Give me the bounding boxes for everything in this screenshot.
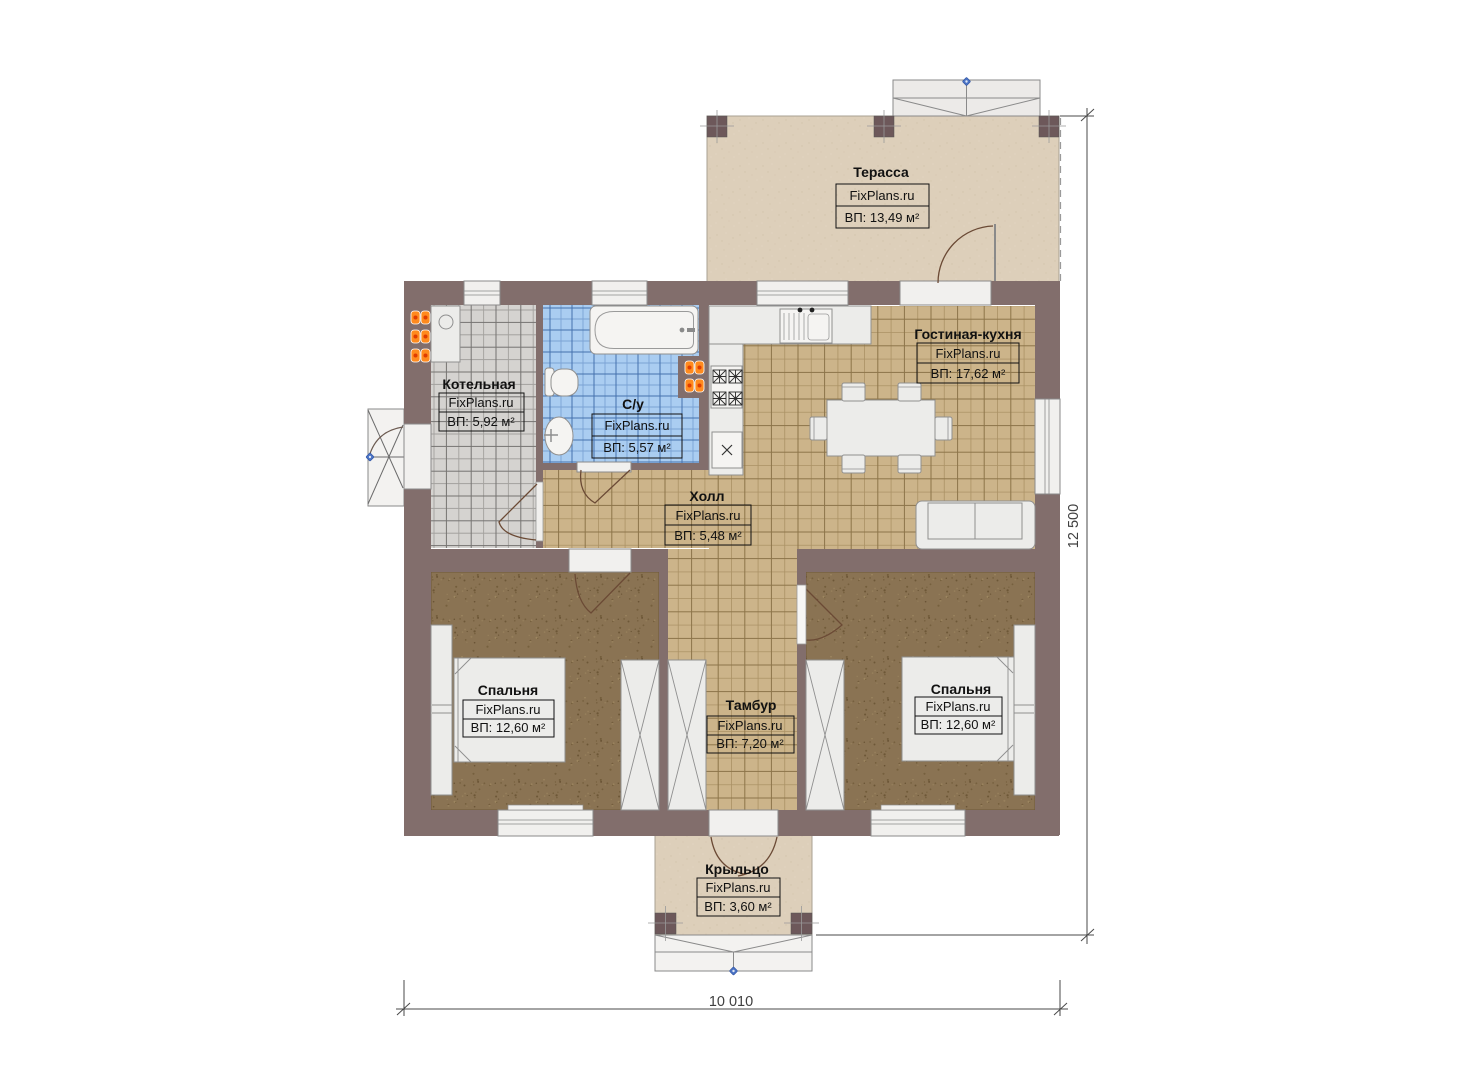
svg-text:FixPlans.ru: FixPlans.ru — [705, 880, 770, 895]
svg-text:FixPlans.ru: FixPlans.ru — [604, 418, 669, 433]
svg-text:Спальня: Спальня — [478, 682, 538, 698]
svg-text:12 500: 12 500 — [1066, 504, 1082, 548]
svg-text:10 010: 10 010 — [709, 994, 753, 1010]
svg-text:ВП: 7,20 м²: ВП: 7,20 м² — [716, 736, 784, 751]
svg-text:FixPlans.ru: FixPlans.ru — [935, 346, 1000, 361]
svg-text:ВП: 17,62 м²: ВП: 17,62 м² — [931, 366, 1006, 381]
svg-text:Котельная: Котельная — [442, 376, 515, 392]
svg-text:FixPlans.ru: FixPlans.ru — [925, 699, 990, 714]
svg-text:ВП: 5,92 м²: ВП: 5,92 м² — [447, 414, 515, 429]
svg-text:ВП: 12,60 м²: ВП: 12,60 м² — [921, 717, 996, 732]
svg-text:FixPlans.ru: FixPlans.ru — [448, 395, 513, 410]
svg-text:Гостиная-кухня: Гостиная-кухня — [914, 326, 1021, 342]
svg-text:ВП: 12,60 м²: ВП: 12,60 м² — [471, 720, 546, 735]
svg-text:ВП: 5,48 м²: ВП: 5,48 м² — [674, 528, 742, 543]
svg-text:ВП: 13,49 м²: ВП: 13,49 м² — [845, 210, 920, 225]
svg-text:Крыльцо: Крыльцо — [705, 861, 769, 877]
svg-text:FixPlans.ru: FixPlans.ru — [475, 702, 540, 717]
svg-text:FixPlans.ru: FixPlans.ru — [849, 188, 914, 203]
svg-text:FixPlans.ru: FixPlans.ru — [717, 718, 782, 733]
svg-text:ВП: 5,57 м²: ВП: 5,57 м² — [603, 440, 671, 455]
svg-text:Спальня: Спальня — [931, 681, 991, 697]
svg-text:FixPlans.ru: FixPlans.ru — [675, 508, 740, 523]
svg-text:С/у: С/у — [622, 396, 644, 412]
svg-text:Терасса: Терасса — [853, 164, 909, 180]
svg-text:Холл: Холл — [689, 488, 724, 504]
svg-text:Тамбур: Тамбур — [726, 697, 777, 713]
svg-text:ВП: 3,60 м²: ВП: 3,60 м² — [704, 899, 772, 914]
